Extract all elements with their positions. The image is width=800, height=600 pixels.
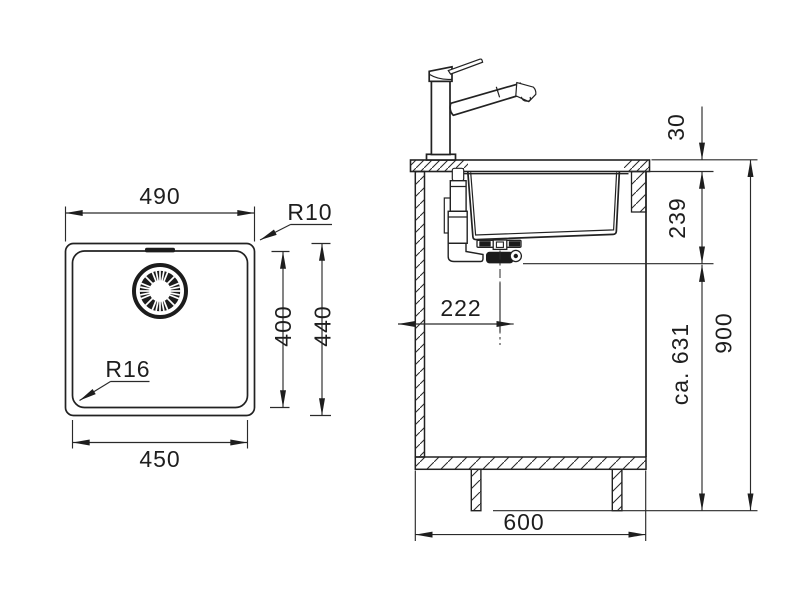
section-view: 30 239 222 ca. 631 900 600 bbox=[398, 59, 758, 541]
drain-strainer bbox=[134, 265, 186, 317]
faucet-lever bbox=[448, 59, 482, 74]
faucet-body bbox=[431, 81, 450, 154]
radius-callout-r10: R10 bbox=[260, 199, 333, 240]
dimension-outer-depth: 440 bbox=[310, 244, 336, 416]
sink-bowl-section bbox=[457, 172, 629, 240]
overflow-slot bbox=[145, 248, 175, 253]
cabinet-leg-left bbox=[471, 469, 481, 510]
faucet-spray-head bbox=[516, 83, 536, 102]
dimension-bowl-depth-section: 239 bbox=[664, 172, 702, 264]
dimension-counter-thickness: 30 bbox=[663, 107, 702, 160]
dimension-worktop-height: 900 bbox=[711, 160, 751, 511]
dim-label-600: 600 bbox=[503, 509, 544, 535]
radius-label-r16: R16 bbox=[105, 356, 150, 382]
sink-outer-rim bbox=[66, 244, 255, 416]
cabinet-bottom-board bbox=[415, 457, 646, 469]
dim-label-440: 440 bbox=[310, 305, 336, 346]
dim-label-239: 239 bbox=[664, 197, 690, 238]
plan-view: 490 450 400 440 R10 bbox=[66, 183, 336, 472]
countertop bbox=[411, 160, 650, 172]
dim-label-400: 400 bbox=[270, 305, 296, 346]
cabinet-left-wall bbox=[415, 172, 424, 458]
dimension-cabinet-width: 600 bbox=[415, 509, 645, 535]
cabinet-right-batten bbox=[632, 172, 647, 213]
technical-drawing-canvas: 490 450 400 440 R10 bbox=[0, 0, 800, 600]
dim-label-900: 900 bbox=[711, 312, 737, 353]
faucet bbox=[427, 59, 536, 160]
radius-callout-r16: R16 bbox=[80, 356, 151, 401]
dimension-bowl-width: 450 bbox=[73, 420, 248, 472]
strainer-rosette bbox=[140, 271, 181, 312]
technical-drawing-page: 490 450 400 440 R10 bbox=[0, 0, 800, 600]
dimension-bowl-depth: 400 bbox=[270, 252, 296, 408]
dim-label-450: 450 bbox=[139, 446, 180, 472]
dim-label-631: ca. 631 bbox=[667, 323, 693, 405]
radius-label-r10: R10 bbox=[287, 199, 332, 225]
drain-assembly bbox=[477, 240, 521, 263]
cabinet-leg-right bbox=[612, 469, 622, 510]
faucet-spout bbox=[450, 83, 525, 115]
dim-label-30: 30 bbox=[663, 113, 689, 141]
dimension-drain-to-floor: ca. 631 bbox=[667, 265, 702, 511]
dimension-outer-width: 490 bbox=[66, 183, 255, 242]
bowl-inner-wall bbox=[471, 173, 617, 236]
dim-label-490: 490 bbox=[139, 183, 180, 209]
bowl-outer-wall bbox=[468, 172, 620, 240]
dim-label-222: 222 bbox=[440, 295, 481, 321]
